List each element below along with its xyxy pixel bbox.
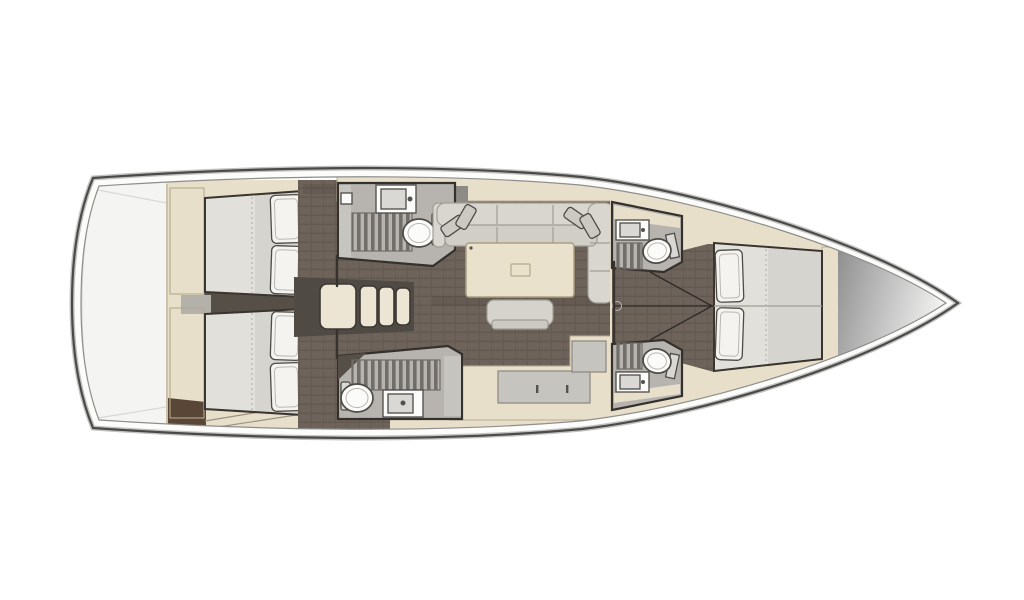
aft-head-starboard-counter bbox=[444, 356, 461, 416]
galley-handle-1 bbox=[536, 385, 538, 393]
fwd-head-port-sink-basin bbox=[620, 223, 640, 237]
forward-mattress-shade bbox=[768, 247, 822, 367]
fwd-head-port-faucet bbox=[641, 228, 645, 232]
fwd-head-port-shower-grate bbox=[617, 243, 642, 269]
fwd-head-starboard-shower-grate bbox=[617, 343, 642, 369]
aft-head-port-shelf bbox=[341, 193, 352, 204]
companionway bbox=[294, 277, 414, 337]
companionway-step-4 bbox=[396, 288, 410, 325]
floorplan-canvas bbox=[0, 0, 1024, 600]
salon-table bbox=[466, 243, 574, 297]
galley-worktop-return bbox=[572, 341, 606, 372]
aft-head-port-sink-basin bbox=[381, 189, 406, 209]
salon-bench-lip bbox=[492, 320, 548, 329]
salon-table-peg bbox=[469, 246, 472, 249]
aft-head-starboard-sink-basin bbox=[388, 394, 413, 413]
companionway-step-2 bbox=[360, 286, 377, 327]
forward-headboard-band bbox=[822, 247, 839, 362]
fwd-head-starboard-faucet bbox=[641, 380, 645, 384]
companionway-landing-pad bbox=[181, 295, 211, 314]
forward-berth bbox=[714, 243, 822, 371]
aft-head-starboard bbox=[338, 346, 462, 419]
aft-head-port-faucet bbox=[408, 197, 413, 202]
galley-worktop-main bbox=[498, 371, 590, 403]
aft-starboard-berth bbox=[205, 309, 303, 415]
aft-head-starboard-faucet bbox=[401, 401, 406, 406]
fwd-head-starboard-sink-basin bbox=[620, 375, 640, 389]
companionway-step-3 bbox=[379, 287, 394, 326]
aft-port-berth bbox=[205, 191, 303, 297]
galley-handle-2 bbox=[566, 385, 568, 393]
companionway-step-1 bbox=[320, 284, 356, 329]
